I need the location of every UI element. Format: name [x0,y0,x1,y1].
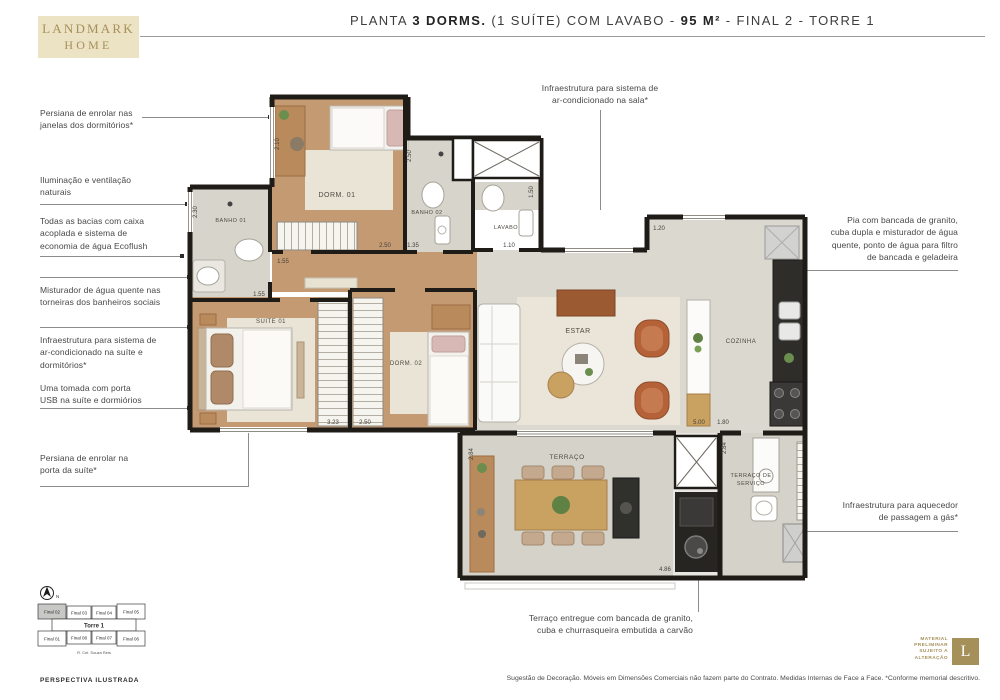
room-label-servico-1: TERRAÇO DE [730,473,771,479]
keyplan-unit-label: Final 07 [96,636,113,641]
annotation-iluminacao: Iluminação e ventilação naturais [40,174,175,199]
leader-line [40,277,190,278]
annotation-infra-ac-suite: Infraestrutura para sistema de ar-condic… [40,334,190,371]
room-label-lavabo: LAVABO [494,225,518,231]
dimension-label: 1.55 [253,292,265,298]
header-rule [140,36,985,37]
annotation-pia-bancada: Pia com bancada de granito, cuba dupla e… [790,214,958,263]
landmark-logo: LANDMARK HOME [38,16,139,58]
keyplan-unit-label: Final 06 [123,637,140,642]
keyplan-unit-label: Final 02 [44,610,61,615]
logo-line1: LANDMARK [42,21,135,37]
room-label-terraco: TERRAÇO [549,454,584,461]
annotation-bacias-ecoflush: Todas as bacias com caixa acoplada e sis… [40,215,180,252]
leader-line [40,204,188,205]
keyplan-unit-label: Final 08 [71,636,88,641]
disclaimer-text: Sugestão de Decoração. Móveis em Dimensõ… [420,675,980,682]
dimension-label: 2.10 [275,138,281,150]
room-label-suite01: SUITE 01 [256,319,286,325]
floor-plan-page: LANDMARK HOME PLANTA 3 DORMS. (1 SUÍTE) … [0,0,1000,700]
title-dorms: 3 DORMS. [412,13,486,28]
dimension-label: 2.84 [722,442,728,454]
dimension-label: 2.30 [193,206,199,218]
annotation-misturador: Misturador de água quente nas torneiras … [40,284,200,309]
keyplan-unit-label: Final 01 [44,637,61,642]
material-note: MATERIAL PRELIMINAR SUJEITO A ALTERAÇÃO [848,637,948,662]
annotation-aquecedor: Infraestrutura para aquecedor de passage… [790,499,958,524]
leader-line [40,408,190,409]
page-title: PLANTA 3 DORMS. (1 SUÍTE) COM LAVABO - 9… [240,13,985,28]
dimension-label: 1.35 [407,243,419,249]
leader-line [793,270,958,271]
room-label-dorm02: DORM. 02 [390,361,423,367]
room-label-servico-2: SERVIÇO [737,481,765,487]
leader-line [40,256,183,257]
dimension-label: 5.00 [693,420,705,426]
dimension-label: 2.50 [379,243,391,249]
dimension-label: 1.55 [277,259,289,265]
room-label-cozinha: COZINHA [726,339,757,345]
dimension-label: 3.23 [327,420,339,426]
leader-line [40,327,190,328]
keyplan-street-label: R. Cel. Souza Reis [77,650,111,655]
leader-tick [180,254,184,258]
title-prefix: PLANTA [350,13,412,28]
brand-badge: L [952,638,979,665]
churrasqueira [675,436,718,572]
room-label-dorm01: DORM. 01 [318,192,355,199]
dimension-label: 2.84 [469,448,475,460]
title-area: 95 M² [681,13,721,28]
annotation-tomada-usb: Uma tomada com porta USB na suíte e dorm… [40,382,190,407]
room-label-banho01: BANHO 01 [215,218,246,224]
floor-plan: DORM. 01 BANHO 02 LAVABO BANHO 01 SUITE … [185,92,815,592]
keyplan-torre-label: Torre 1 [84,624,105,630]
annotation-persiana-janelas: Persiana de enrolar nas janelas dos dorm… [40,107,175,132]
compass-icon: N [41,587,60,600]
dimension-label: 4.86 [659,567,671,573]
brand-badge-letter: L [961,643,971,661]
compass-north-label: N [56,594,59,599]
keyplan-unit-label: Final 03 [71,611,88,616]
dimension-label: 1.80 [717,420,729,426]
title-suffix: - FINAL 2 - TORRE 1 [721,13,875,28]
keyplan-unit-label: Final 04 [96,611,113,616]
room-label-estar: ESTAR [565,328,590,335]
annotation-persiana-suite: Persiana de enrolar na porta da suíte* [40,452,180,477]
dimension-label: 1.20 [653,226,665,232]
dimension-label: 2.50 [359,420,371,426]
dimension-label: 2.50 [407,150,413,162]
keyplan-unit-label: Final 05 [123,610,140,615]
dimension-label: 1.50 [529,186,535,198]
dimension-label: 1.10 [503,243,515,249]
perspectiva-label: PERSPECTIVA ILUSTRADA [40,677,139,684]
keyplan: N Final 02 Final 03 Final 04 Final 05 To… [36,584,156,664]
annotation-terraco: Terraço entregue com bancada de granito,… [490,612,693,637]
logo-line2: HOME [64,38,112,53]
title-mid: (1 SUÍTE) COM LAVABO - [486,13,680,28]
room-label-banho02: BANHO 02 [411,210,442,216]
